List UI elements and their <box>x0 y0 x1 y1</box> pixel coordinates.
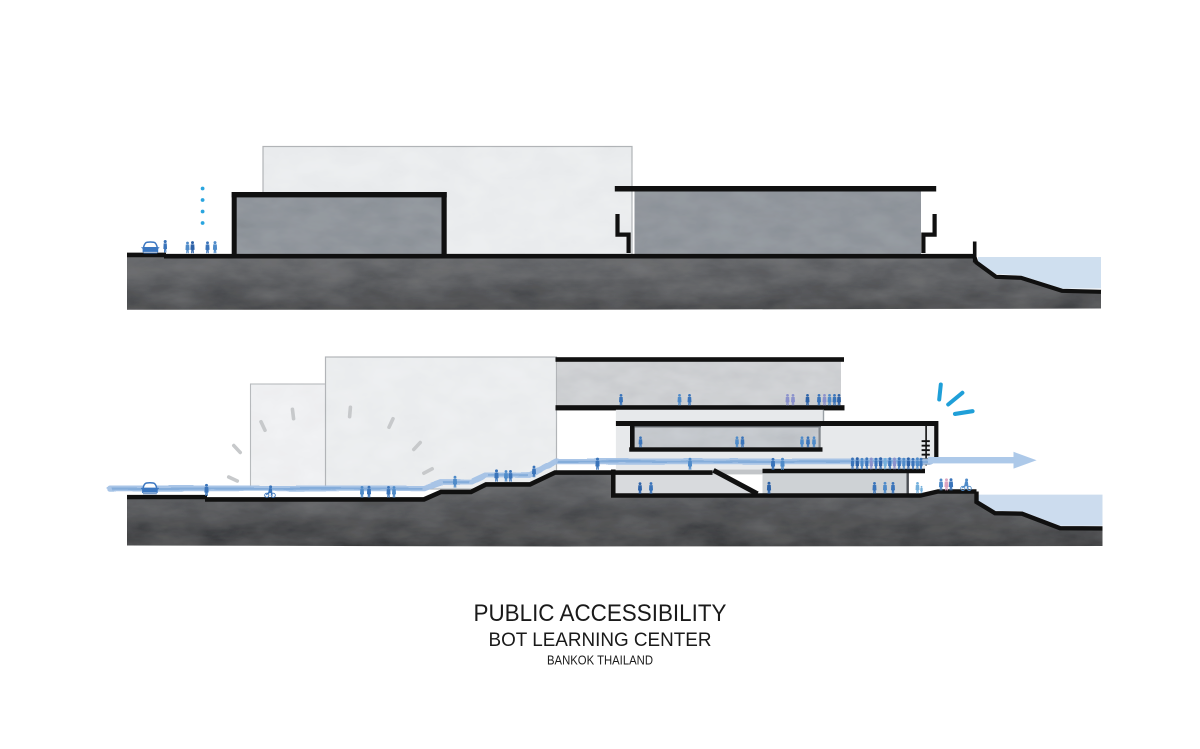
svg-text:PUBLIC ACCESSIBILITY: PUBLIC ACCESSIBILITY <box>474 600 727 627</box>
svg-text:BOT LEARNING CENTER: BOT LEARNING CENTER <box>489 629 712 651</box>
svg-text:BANKOK THAILAND: BANKOK THAILAND <box>547 654 653 668</box>
